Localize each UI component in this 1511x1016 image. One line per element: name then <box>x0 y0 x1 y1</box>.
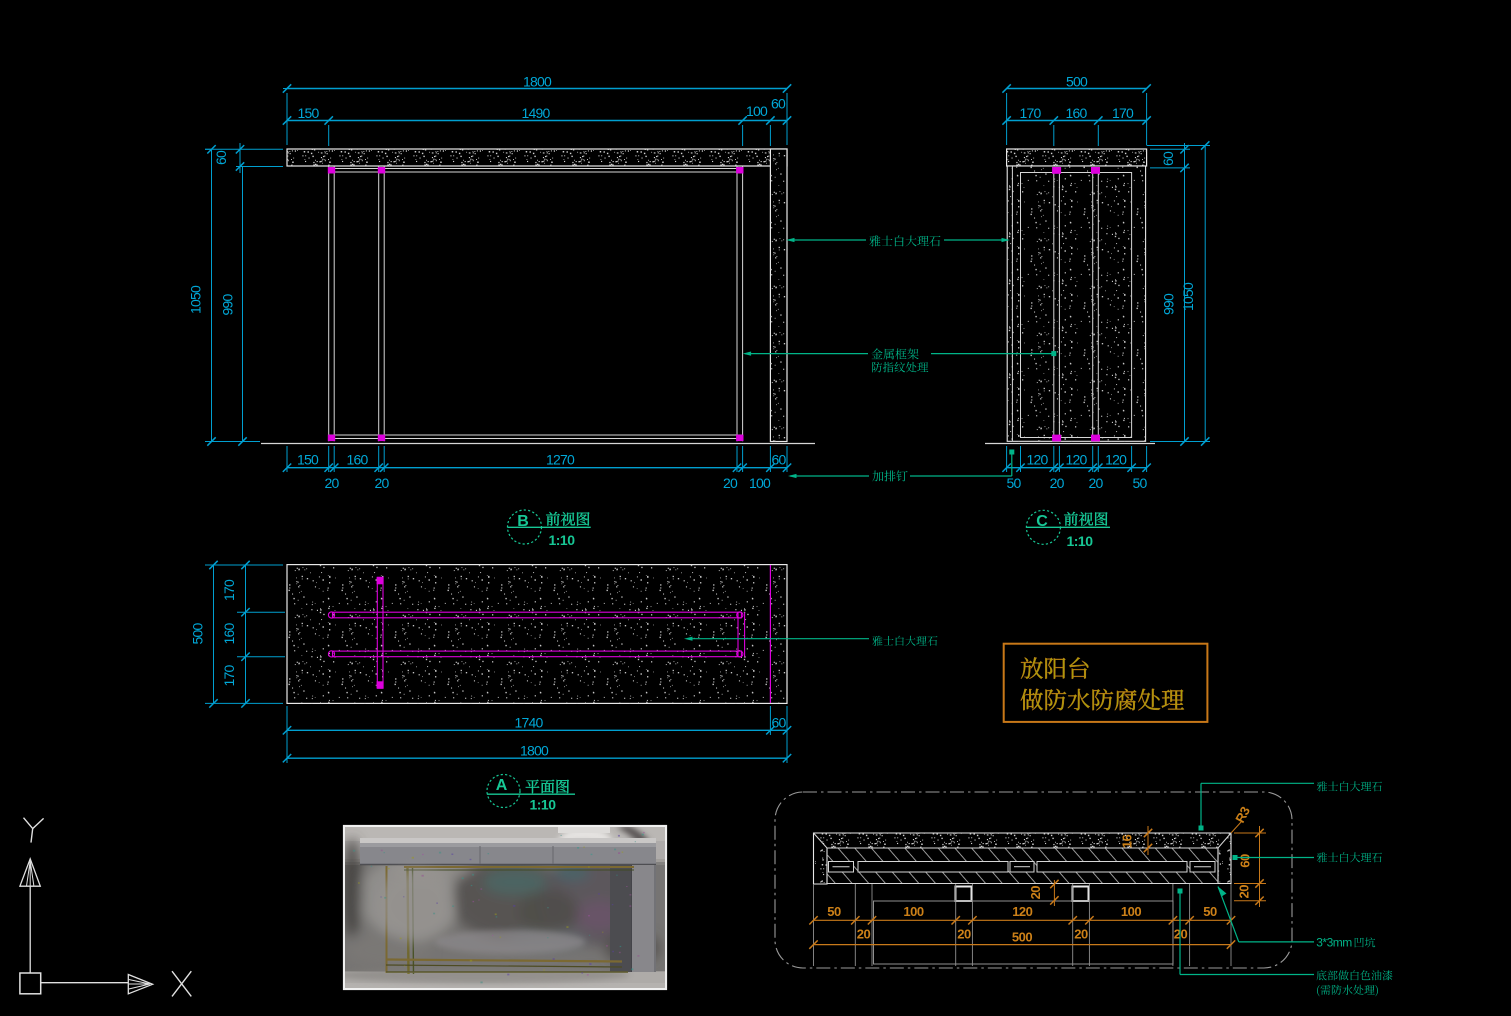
svg-text:1800: 1800 <box>523 74 552 90</box>
svg-text:120: 120 <box>1027 452 1049 468</box>
svg-text:60: 60 <box>771 96 786 112</box>
svg-text:60: 60 <box>772 452 787 468</box>
svg-text:60: 60 <box>772 715 787 731</box>
svg-text:990: 990 <box>1161 293 1177 315</box>
svg-text:1050: 1050 <box>1180 282 1196 311</box>
svg-text:500: 500 <box>190 623 206 645</box>
svg-text:990: 990 <box>220 294 236 316</box>
svg-text:120: 120 <box>1105 452 1127 468</box>
svg-text:50: 50 <box>827 904 841 919</box>
svg-text:20: 20 <box>1050 475 1065 491</box>
svg-text:20: 20 <box>1028 886 1043 900</box>
svg-text:170: 170 <box>1112 105 1134 121</box>
svg-text:1:10: 1:10 <box>529 797 556 813</box>
svg-text:B: B <box>517 513 529 530</box>
svg-text:160: 160 <box>1066 105 1088 121</box>
svg-text:20: 20 <box>1174 927 1188 942</box>
svg-text:100: 100 <box>746 103 768 119</box>
svg-text:C: C <box>1036 513 1048 530</box>
svg-text:160: 160 <box>347 452 369 468</box>
svg-text:20: 20 <box>957 927 971 942</box>
svg-text:50: 50 <box>1133 475 1148 491</box>
svg-text:16: 16 <box>1120 835 1135 849</box>
svg-text:20: 20 <box>723 475 738 491</box>
svg-text:100: 100 <box>903 904 923 919</box>
svg-text:20: 20 <box>375 475 390 491</box>
svg-text:1:10: 1:10 <box>1066 533 1093 549</box>
svg-text:1740: 1740 <box>515 715 544 731</box>
svg-text:20: 20 <box>1089 475 1104 491</box>
svg-text:60: 60 <box>1160 151 1176 166</box>
svg-text:150: 150 <box>297 452 319 468</box>
svg-text:170: 170 <box>1020 105 1042 121</box>
svg-text:A: A <box>496 777 508 794</box>
svg-text:500: 500 <box>1066 74 1088 90</box>
svg-text:1270: 1270 <box>546 452 575 468</box>
svg-text:100: 100 <box>749 475 771 491</box>
svg-text:120: 120 <box>1012 904 1032 919</box>
svg-text:170: 170 <box>221 579 237 601</box>
svg-text:1:10: 1:10 <box>548 532 575 548</box>
svg-text:60: 60 <box>1238 854 1253 868</box>
svg-text:150: 150 <box>298 105 320 121</box>
svg-text:20: 20 <box>1074 927 1088 942</box>
svg-text:20: 20 <box>857 927 871 942</box>
svg-text:20: 20 <box>1237 885 1252 899</box>
svg-text:50: 50 <box>1203 904 1217 919</box>
svg-text:1800: 1800 <box>520 743 549 759</box>
svg-text:R3: R3 <box>1232 804 1253 825</box>
svg-text:160: 160 <box>221 623 237 645</box>
svg-text:500: 500 <box>1012 930 1032 945</box>
svg-text:3*3mm: 3*3mm <box>1316 936 1352 950</box>
svg-text:50: 50 <box>1007 475 1022 491</box>
svg-text:60: 60 <box>213 150 229 165</box>
svg-text:1050: 1050 <box>188 285 204 314</box>
svg-text:100: 100 <box>1121 904 1141 919</box>
svg-text:170: 170 <box>221 665 237 687</box>
svg-text:120: 120 <box>1066 452 1088 468</box>
svg-text:1490: 1490 <box>522 105 551 121</box>
svg-text:20: 20 <box>325 475 340 491</box>
